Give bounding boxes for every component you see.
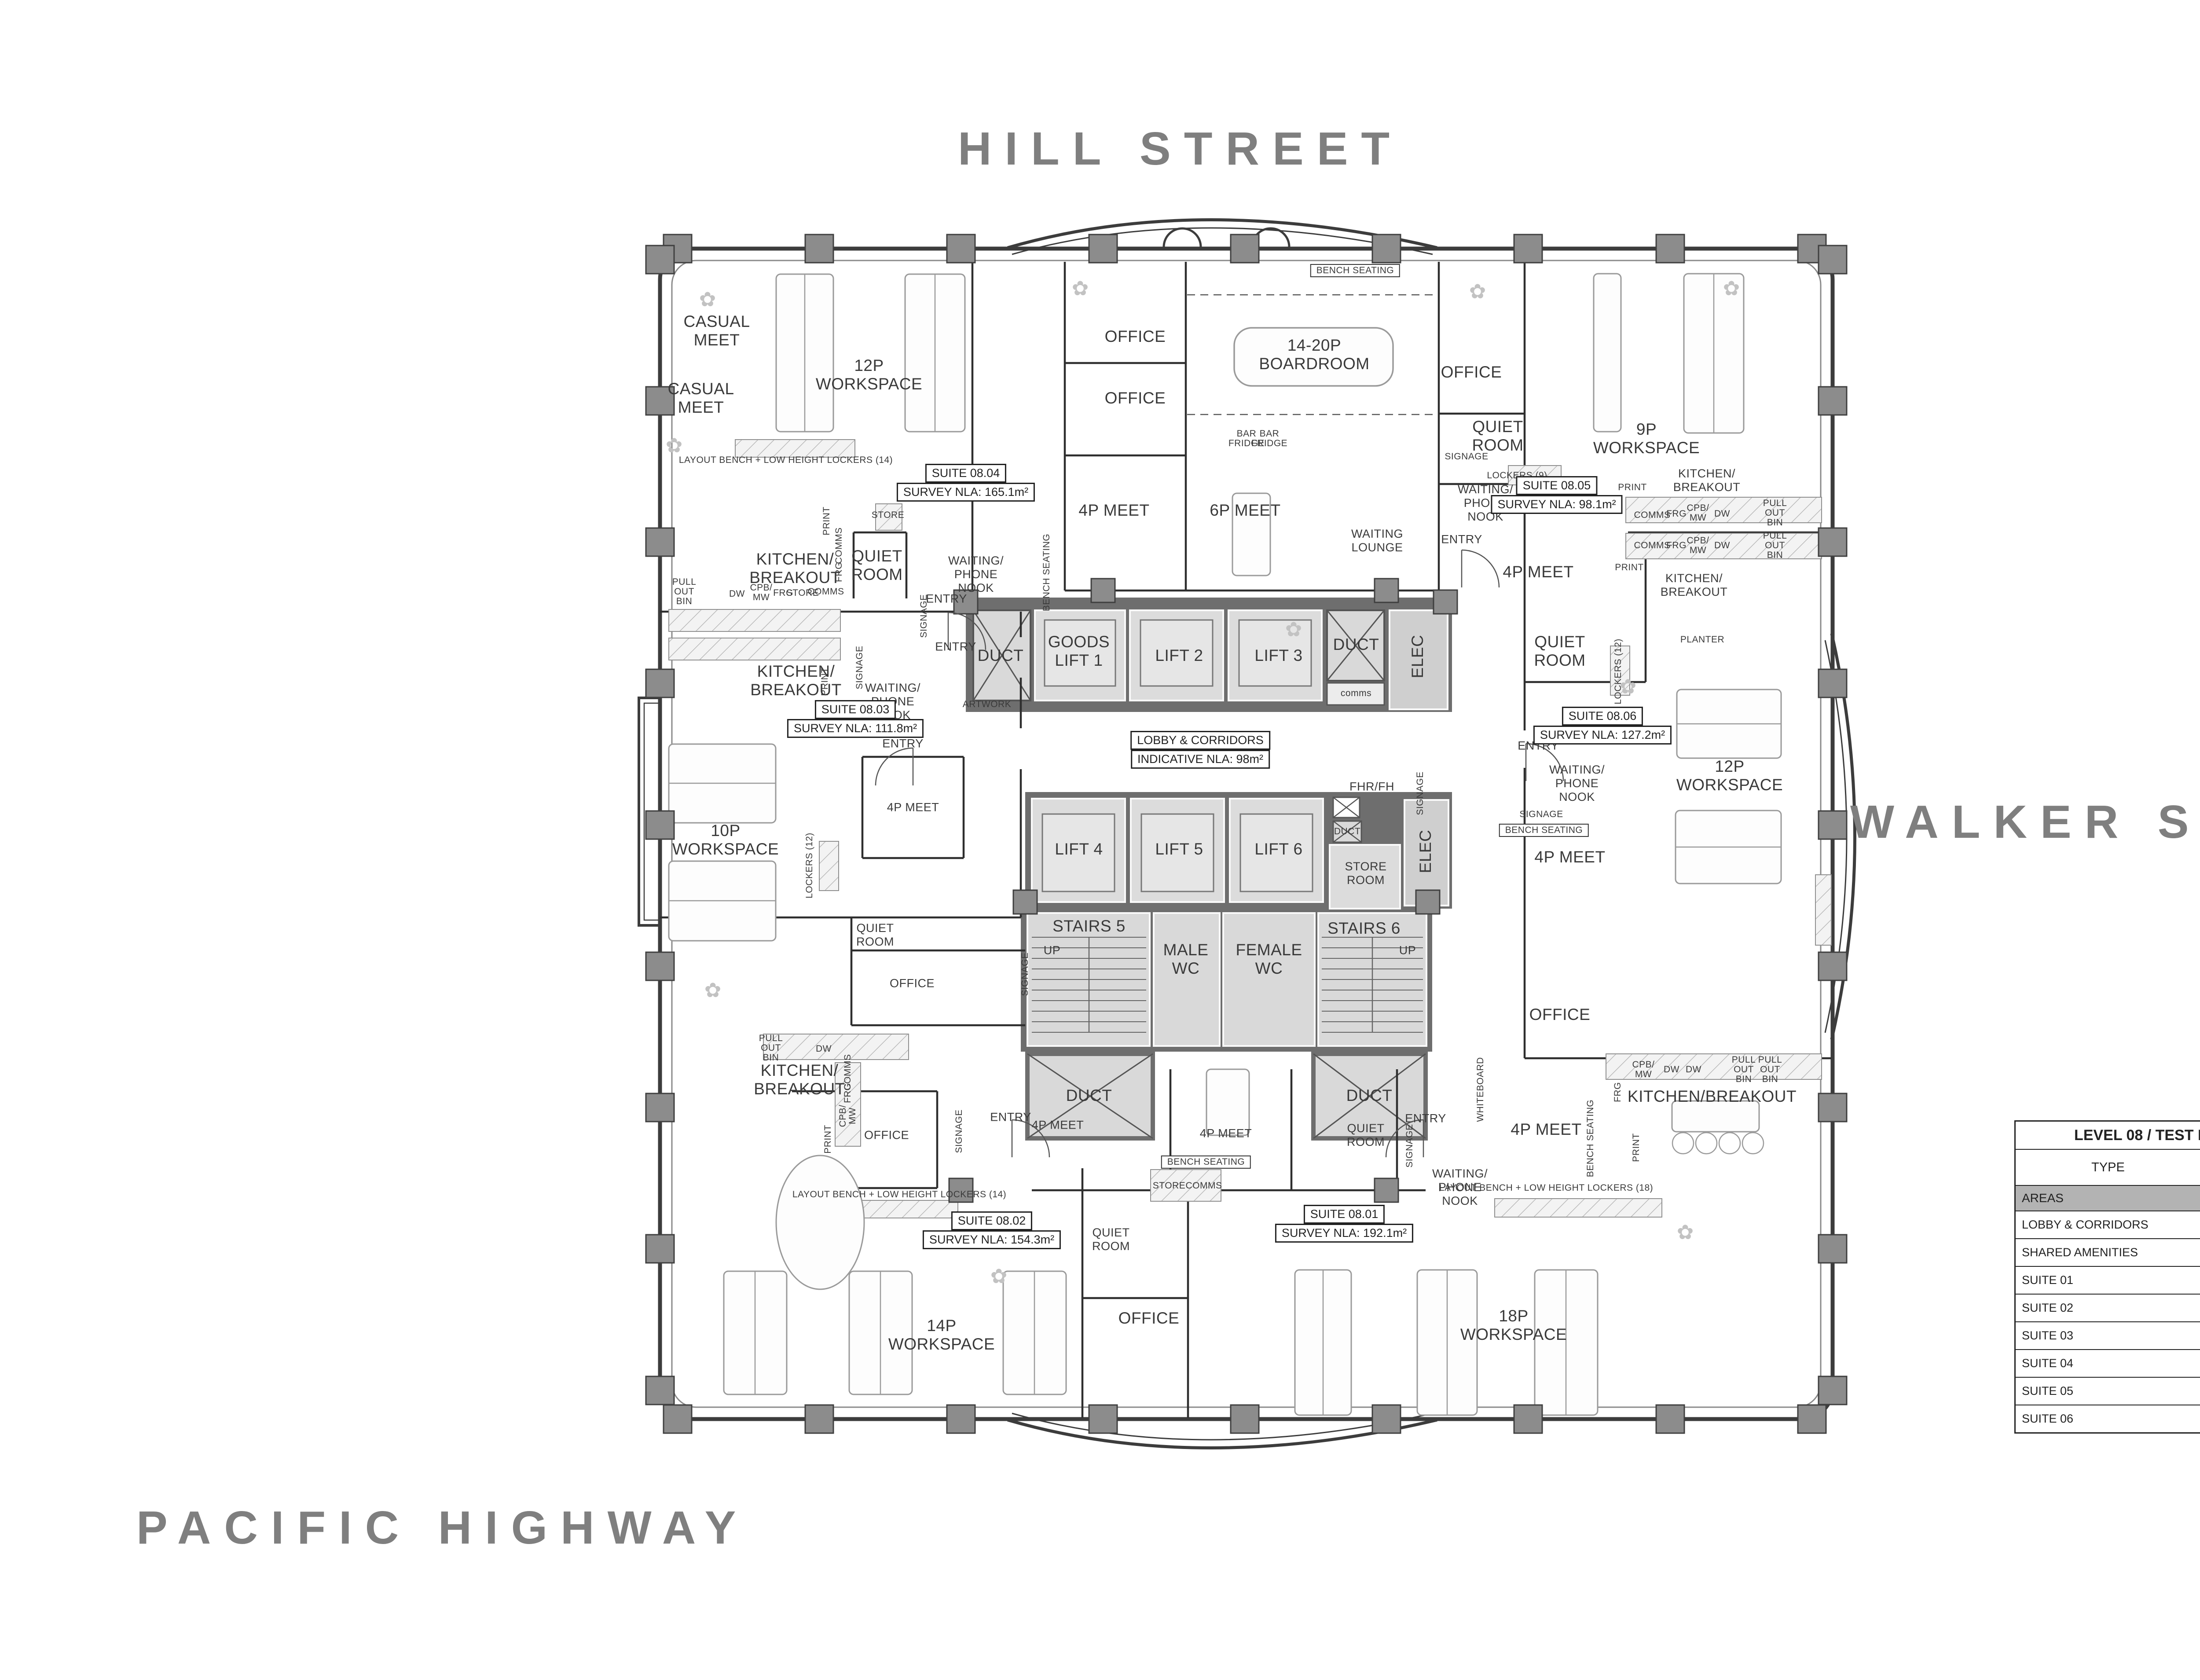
plant-icon: ✿ (1469, 279, 1486, 303)
label-6p-meet: 6P MEET (1210, 501, 1280, 520)
label-print: PRINT (822, 506, 832, 536)
cell-type: SUITE 05 (2015, 1377, 2200, 1405)
label-lift-5: LIFT 5 (1155, 840, 1203, 858)
label-pull-out-bin: PULL OUT BIN (759, 1034, 783, 1063)
label-waiting-phone-nook: WAITING/ PHONE NOOK (1549, 763, 1605, 803)
label-4p-meet: 4P MEET (887, 801, 939, 814)
box-line2: SURVEY NLA: 111.8m² (787, 719, 924, 738)
box-suite-08-01: SUITE 08.01SURVEY NLA: 192.1m² (1275, 1205, 1413, 1243)
box-line1: SUITE 08.05 (1516, 476, 1598, 495)
label-bench-seating: BENCH SEATING (1499, 824, 1589, 837)
table-row: SUITE 06127.2 (2015, 1405, 2200, 1433)
street-name-right: WALKER STREET (1850, 796, 2200, 849)
plant-icon: ✿ (1723, 276, 1740, 300)
box-suite-08-05: SUITE 08.05SURVEY NLA: 98.1m² (1491, 476, 1622, 514)
cell-type: SUITE 01 (2015, 1266, 2200, 1294)
label-kitchen-breakout: KITCHEN/ BREAKOUT (1673, 467, 1741, 494)
label-entry: ENTRY (935, 640, 976, 654)
label-quiet-room: QUIET ROOM (1347, 1122, 1385, 1149)
label-dw: DW (816, 1044, 832, 1054)
label-comms: COMMS (808, 587, 844, 597)
box-line2: SURVEY NLA: 154.3m² (923, 1230, 1061, 1249)
box-line1: SUITE 08.04 (925, 464, 1007, 483)
label-female-wc: FEMALE WC (1236, 941, 1302, 978)
label-office: OFFICE (1118, 1309, 1180, 1328)
label-up: UP (1044, 944, 1061, 957)
label-casual-meet: CASUAL MEET (667, 380, 734, 417)
box-suite-08-02: SUITE 08.02SURVEY NLA: 154.3m² (923, 1211, 1061, 1249)
label-entry: ENTRY (990, 1111, 1031, 1124)
label-12p-workspace: 12P WORKSPACE (816, 356, 922, 393)
label-office: OFFICE (864, 1129, 909, 1142)
label-dw: DW (1664, 1065, 1679, 1075)
plant-icon: ✿ (1620, 675, 1637, 698)
label-waiting-phone-nook: WAITING/ PHONE NOOK (1432, 1167, 1488, 1207)
label-print: PRINT (1615, 563, 1644, 572)
label-10p-workspace: 10P WORKSPACE (672, 822, 779, 858)
label-artwork: ARTWORK (963, 700, 1011, 709)
table-row: LOBBY & CORRIDORS98 (2015, 1211, 2200, 1239)
label-office: OFFICE (1441, 363, 1502, 381)
label-cpb-mw: CPB/ MW (838, 1104, 858, 1127)
label-signage: SIGNAGE (919, 594, 929, 638)
label-quiet-room: QUIET ROOM (1534, 633, 1585, 670)
label-signage: SIGNAGE (1415, 771, 1425, 815)
label-planter: PLANTER (1680, 635, 1724, 645)
cell-type: SUITE 02 (2015, 1294, 2200, 1322)
box-line2: SURVEY NLA: 98.1m² (1491, 495, 1622, 514)
label-cpb-mw: CPB/ MW (1632, 1060, 1654, 1079)
cell-type: LOBBY & CORRIDORS (2015, 1211, 2200, 1239)
label-store-room: STORE ROOM (1345, 860, 1386, 887)
cell-type: SUITE 03 (2015, 1322, 2200, 1350)
label-bench-seating: BENCH SEATING (1042, 534, 1052, 611)
label-stairs-5: STAIRS 5 (1052, 917, 1126, 935)
box-line2: SURVEY NLA: 192.1m² (1275, 1224, 1413, 1243)
label-kitchen-breakout: KITCHEN/ BREAKOUT (749, 550, 841, 587)
label-entry: ENTRY (1441, 533, 1482, 547)
label-frg: FRG (843, 1083, 853, 1103)
box-lobby-corridors: LOBBY & CORRIDORSINDICATIVE NLA: 98m² (1130, 731, 1270, 769)
label-kitchen-breakout: KITCHEN/ BREAKOUT (1661, 572, 1728, 599)
floor-plan-canvas: CASUAL MEETCASUAL MEET12P WORKSPACEOFFIC… (0, 0, 2200, 1680)
label-pull-out-bin: PULL OUT BIN (1763, 531, 1787, 560)
label-duct: DUCT (1346, 1086, 1393, 1105)
label-quiet-room: QUIET ROOM (856, 921, 894, 949)
cell-type: SHARED AMENITIES (2015, 1239, 2200, 1266)
label-comms: COMMS (1186, 1181, 1222, 1191)
label-office: OFFICE (1105, 389, 1166, 407)
label-lift-6: LIFT 6 (1254, 840, 1302, 858)
label-office: OFFICE (1105, 327, 1166, 346)
label-lift-4: LIFT 4 (1055, 840, 1103, 858)
label-dw: DW (1714, 541, 1730, 550)
table-row: SUITE 03111.8 (2015, 1322, 2200, 1350)
label-store: STORE (1153, 1181, 1185, 1191)
label-dw: DW (1686, 1065, 1701, 1075)
label-frg: FRG (1613, 1082, 1623, 1102)
label-male-wc: MALE WC (1163, 941, 1209, 978)
label-goods-lift-1: GOODS LIFT 1 (1048, 633, 1110, 670)
label-4p-meet: 4P MEET (1032, 1119, 1084, 1132)
label-entry: ENTRY (1405, 1112, 1446, 1126)
label-duct: DUCT (1334, 827, 1360, 836)
label-bench-seating: BENCH SEATING (1310, 264, 1400, 277)
label-signage: SIGNAGE (1445, 452, 1488, 462)
label-cpb-mw: CPB/ MW (1687, 536, 1709, 555)
label-lockers-12: LOCKERS (12) (805, 833, 814, 899)
label-waiting-phone-nook: WAITING/ PHONE NOOK (948, 554, 1004, 594)
table-row: SHARED AMENITIES62.9 (2015, 1239, 2200, 1266)
label-signage: SIGNAGE (1020, 952, 1030, 996)
label-duct: DUCT (1066, 1086, 1112, 1105)
table-row: SUITE 0598.1 (2015, 1377, 2200, 1405)
label-4p-meet: 4P MEET (1534, 848, 1605, 866)
plant-icon: ✿ (704, 978, 722, 1002)
label-signage: SIGNAGE (954, 1109, 964, 1153)
box-line2: INDICATIVE NLA: 98m² (1131, 750, 1270, 769)
label-frg: FRG (834, 562, 844, 582)
label-14p-workspace: 14P WORKSPACE (888, 1317, 995, 1354)
box-line1: SUITE 08.06 (1562, 707, 1643, 726)
label-12p-workspace: 12P WORKSPACE (1676, 757, 1783, 794)
label-up: UP (1399, 944, 1416, 957)
label-kitchen-breakout: KITCHEN/BREAKOUT (1628, 1087, 1797, 1106)
label-signage: SIGNAGE (1405, 1124, 1415, 1167)
plant-icon: ✿ (1285, 617, 1302, 641)
label-pull-out-bin: PULL OUT BIN (1758, 1055, 1782, 1084)
label-dw: DW (729, 589, 745, 599)
table-title: LEVEL 08 / TEST FIT PLAN (2015, 1121, 2200, 1150)
label-print: PRINT (823, 1125, 833, 1154)
box-line1: LOBBY & CORRIDORS (1130, 731, 1270, 750)
plant-icon: ✿ (699, 287, 716, 311)
label-kitchen-breakout: KITCHEN/ BREAKOUT (754, 1061, 845, 1098)
label-quiet-room: QUIET ROOM (1092, 1226, 1130, 1253)
table-col-type: TYPE (2015, 1149, 2200, 1185)
label-comms: COMMS (1634, 510, 1671, 520)
street-name-top: HILL STREET (958, 122, 1403, 176)
label-pull-out-bin: PULL OUT BIN (1732, 1055, 1756, 1084)
label-elec: ELEC (1416, 830, 1435, 873)
label-4p-meet: 4P MEET (1511, 1120, 1581, 1139)
label-dw: DW (1714, 509, 1730, 519)
table-row: SUITE 04165.1 (2015, 1350, 2200, 1377)
label-office: OFFICE (890, 977, 935, 990)
label-4p-meet: 4P MEET (1503, 563, 1573, 581)
label-quiet-room: QUIET ROOM (1472, 418, 1523, 455)
cell-type: SUITE 06 (2015, 1405, 2200, 1433)
box-line2: SURVEY NLA: 127.2m² (1533, 726, 1672, 745)
box-line1: SUITE 08.02 (951, 1211, 1033, 1230)
label-4p-meet: 4P MEET (1200, 1127, 1252, 1141)
plant-icon: ✿ (990, 1264, 1008, 1288)
label-print: PRINT (820, 667, 830, 696)
label-comms: COMMS (834, 528, 844, 564)
label-signage: SIGNAGE (855, 646, 865, 689)
label-pull-out-bin: PULL OUT BIN (1763, 499, 1787, 528)
table-row: SUITE 02154.3 (2015, 1294, 2200, 1322)
label-cpb-mw: CPB/ MW (750, 583, 772, 602)
label-layout-bench-low-height-lockers-14: LAYOUT BENCH + LOW HEIGHT LOCKERS (14) (792, 1190, 1006, 1199)
area-schedule-table: LEVEL 08 / TEST FIT PLAN TYPE QUANTITY (… (2014, 1120, 2200, 1434)
label-entry: ENTRY (926, 592, 967, 606)
label-18p-workspace: 18P WORKSPACE (1460, 1307, 1567, 1344)
street-name-bottom: PACIFIC HIGHWAY (136, 1501, 749, 1555)
label-cpb-mw: CPB/ MW (1687, 503, 1709, 523)
label-fhr-fh: FHR/FH (1349, 780, 1394, 794)
cell-type: SUITE 04 (2015, 1350, 2200, 1377)
label-print: PRINT (1632, 1133, 1641, 1162)
label-pull-out-bin: PULL OUT BIN (672, 577, 697, 606)
label-store: STORE (872, 510, 904, 520)
label-entry: ENTRY (882, 737, 924, 751)
label-stairs-6: STAIRS 6 (1327, 919, 1401, 938)
label-elec: ELEC (1408, 635, 1427, 679)
label-14-20p-boardroom: 14-20P BOARDROOM (1259, 336, 1369, 373)
plant-icon: ✿ (666, 433, 683, 457)
box-line2: SURVEY NLA: 165.1m² (897, 483, 1035, 502)
label-layout-bench-low-height-lockers-14: LAYOUT BENCH + LOW HEIGHT LOCKERS (14) (679, 455, 893, 465)
label-lift-2: LIFT 2 (1155, 646, 1203, 665)
label-9p-workspace: 9P WORKSPACE (1593, 420, 1700, 457)
label-whiteboard: WHITEBOARD (1476, 1057, 1485, 1122)
label-bar-fridge: BAR FRIDGE (1251, 429, 1287, 448)
table-section-areas: AREAS (2015, 1185, 2200, 1211)
box-suite-08-06: SUITE 08.06SURVEY NLA: 127.2m² (1533, 707, 1672, 745)
box-line1: SUITE 08.01 (1304, 1205, 1385, 1224)
label-duct: DUCT (1333, 635, 1379, 654)
label-casual-meet: CASUAL MEET (683, 312, 750, 349)
table-row: SUITE 01192.1 (2015, 1266, 2200, 1294)
box-suite-08-03: SUITE 08.03SURVEY NLA: 111.8m² (787, 700, 924, 738)
label-office: OFFICE (1529, 1005, 1591, 1024)
label-comms: comms (1341, 689, 1371, 698)
label-4p-meet: 4P MEET (1078, 501, 1149, 520)
label-bench-seating: BENCH SEATING (1161, 1155, 1251, 1169)
label-comms: COMMS (1634, 541, 1671, 550)
plant-icon: ✿ (1677, 1220, 1694, 1244)
label-waiting-lounge: WAITING LOUNGE (1351, 527, 1403, 554)
plant-icon: ✿ (1072, 276, 1089, 300)
label-frg: FRG (1666, 509, 1687, 519)
label-frg: FRG (1666, 541, 1687, 550)
label-signage: SIGNAGE (1519, 810, 1563, 819)
label-duct: DUCT (978, 646, 1024, 665)
label-bench-seating: BENCH SEATING (1586, 1100, 1595, 1177)
box-line1: SUITE 08.03 (815, 700, 896, 719)
label-lift-3: LIFT 3 (1254, 646, 1302, 665)
box-suite-08-04: SUITE 08.04SURVEY NLA: 165.1m² (897, 464, 1035, 502)
label-quiet-room: QUIET ROOM (851, 547, 902, 584)
